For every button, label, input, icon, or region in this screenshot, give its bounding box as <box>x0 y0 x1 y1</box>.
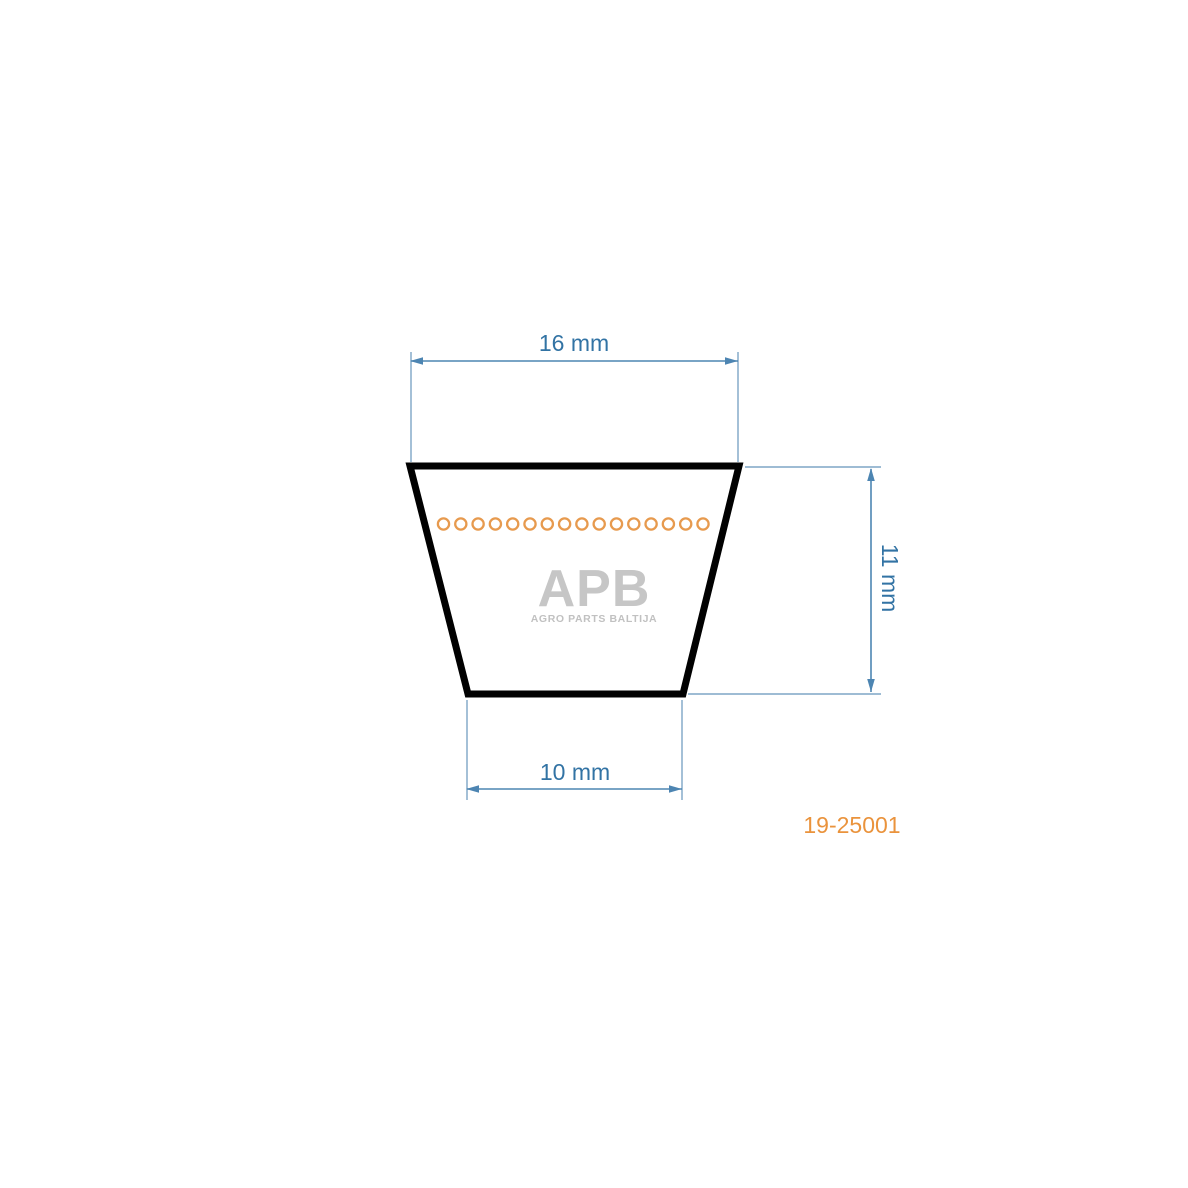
bottom-width-label: 10 mm <box>540 759 610 785</box>
logo-text: APB <box>538 560 651 618</box>
height-label: 11 mm <box>877 544 903 613</box>
diagram-canvas: 16 mm 10 mm 11 mm APB AGRO PARTS BALTIJA… <box>0 0 1188 1188</box>
top-width-label: 16 mm <box>539 330 609 356</box>
v-belt-cross-section-diagram: 16 mm 10 mm 11 mm APB AGRO PARTS BALTIJA… <box>0 0 1188 1188</box>
dimension-top-width: 16 mm <box>411 330 738 462</box>
part-number: 19-25001 <box>803 812 900 838</box>
dimension-bottom-width: 10 mm <box>467 700 682 800</box>
watermark-logo: APB AGRO PARTS BALTIJA <box>531 560 658 625</box>
logo-subtitle: AGRO PARTS BALTIJA <box>531 613 658 625</box>
